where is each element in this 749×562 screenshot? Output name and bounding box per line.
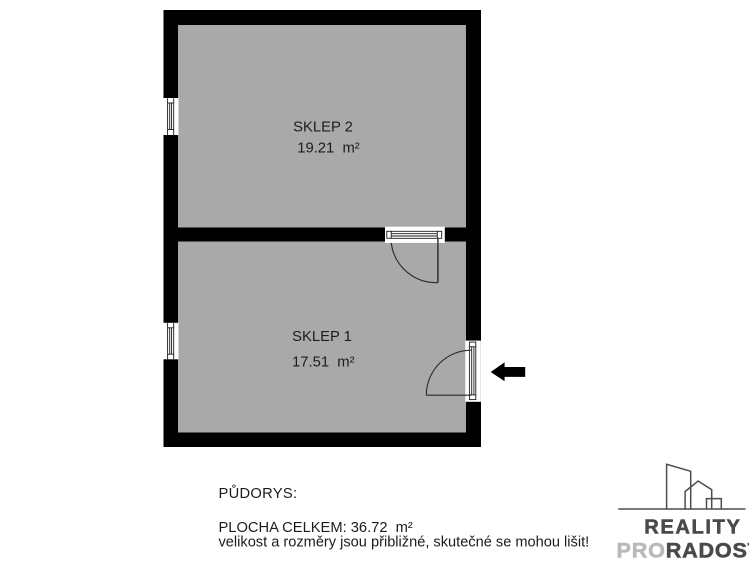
- svg-text:17.51 m²: 17.51 m²: [292, 355, 355, 371]
- svg-text:19.21 m²: 19.21 m²: [297, 140, 360, 156]
- svg-text:PŮDORYS:: PŮDORYS:: [219, 484, 298, 502]
- svg-text:SKLEP 1: SKLEP 1: [292, 329, 352, 345]
- svg-text:PRORADOST: PRORADOST: [617, 538, 749, 562]
- svg-text:REALITY: REALITY: [644, 516, 741, 538]
- svg-text:velikost a rozměry jsou přibli: velikost a rozměry jsou přibližné, skute…: [219, 534, 590, 550]
- svg-text:SKLEP 2: SKLEP 2: [293, 119, 353, 135]
